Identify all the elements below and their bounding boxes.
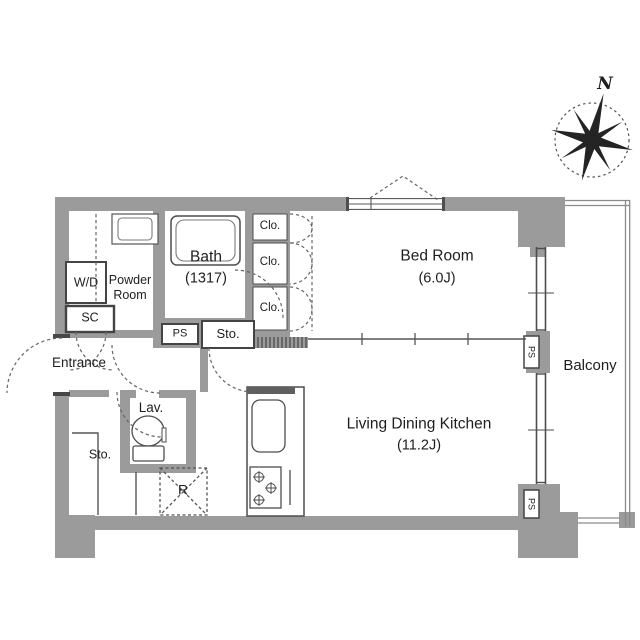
compass-rose-icon — [541, 83, 640, 191]
partition-line — [308, 333, 526, 345]
washbasin-icon — [112, 214, 158, 244]
balcony-label: Balcony — [563, 357, 616, 375]
washer-dryer-label: W/D — [74, 276, 98, 291]
ldk-size-label: (11.2J) — [397, 437, 441, 454]
walls — [55, 197, 635, 558]
bedroom-size-label: (6.0J) — [418, 270, 455, 287]
bedroom-label: Bed Room — [400, 248, 473, 267]
balcony-ps-bottom-label: PS — [526, 498, 537, 510]
hall-ps-label: PS — [173, 327, 188, 340]
floorplan-page: N Bath (1317) Powder Room W/D SC Entranc… — [0, 0, 640, 640]
closet-label-3: Clo. — [260, 302, 280, 316]
lower-storage-label: Sto. — [89, 448, 111, 463]
ldk-label: Living Dining Kitchen — [347, 416, 492, 435]
entrance-label: Entrance — [52, 355, 106, 371]
sink-icon — [252, 400, 285, 452]
shoe-closet-label: SC — [81, 311, 98, 326]
powder-room-label: Powder Room — [101, 273, 159, 303]
closet-label-2: Clo. — [260, 256, 280, 270]
hall-storage-label: Sto. — [216, 326, 239, 342]
bath-label: Bath — [190, 249, 222, 268]
wall-hatch — [249, 337, 308, 348]
balcony-ps-mid-label: PS — [526, 346, 537, 358]
closet-label-1: Clo. — [260, 220, 280, 234]
lavatory-label: Lav. — [139, 400, 164, 416]
toilet-icon — [132, 416, 166, 461]
kitchen-counter — [247, 387, 304, 516]
bath-size-label: (1317) — [185, 270, 227, 287]
bedroom-window — [346, 197, 445, 211]
refrigerator-label: R — [178, 482, 188, 499]
north-label: N — [597, 74, 613, 94]
